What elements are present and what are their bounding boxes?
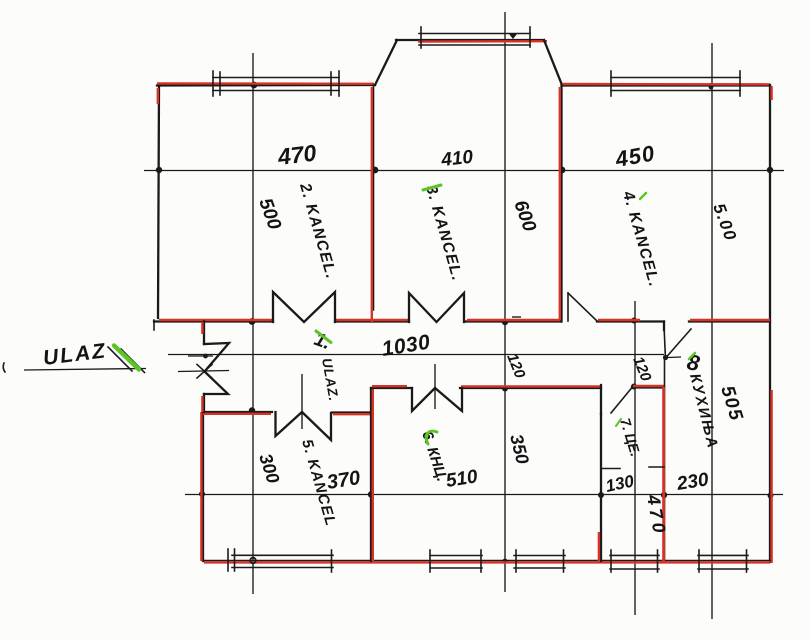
svg-text:120: 120 — [503, 351, 528, 381]
svg-text:2. KANCEL.: 2. KANCEL. — [296, 180, 340, 281]
svg-text:7. ЦЕ.: 7. ЦЕ. — [617, 416, 644, 458]
svg-text:470: 470 — [275, 139, 317, 170]
svg-text:350: 350 — [506, 432, 533, 466]
svg-text:4. KANCEL.: 4. KANCEL. — [619, 188, 663, 289]
svg-text:370: 370 — [325, 467, 361, 494]
svg-text:500: 500 — [254, 196, 285, 233]
svg-text:130: 130 — [604, 471, 636, 496]
svg-text:КУХИЊА: КУХИЊА — [686, 372, 721, 451]
svg-text:230: 230 — [675, 469, 711, 495]
svg-text:470: 470 — [643, 492, 670, 538]
svg-text:505: 505 — [716, 383, 747, 424]
svg-text:600: 600 — [509, 198, 540, 235]
svg-text:120: 120 — [629, 354, 654, 384]
svg-text:3. KANCEL.: 3. KANCEL. — [422, 183, 466, 283]
svg-text:450: 450 — [613, 140, 657, 172]
svg-text:ULAZ.: ULAZ. — [319, 357, 341, 403]
svg-text:300: 300 — [255, 451, 283, 486]
svg-text:5.00: 5.00 — [709, 201, 740, 244]
svg-text:410: 410 — [439, 147, 474, 171]
svg-text:ULAZ: ULAZ — [42, 339, 108, 370]
svg-text:1030: 1030 — [380, 331, 432, 361]
svg-text:510: 510 — [444, 466, 479, 492]
